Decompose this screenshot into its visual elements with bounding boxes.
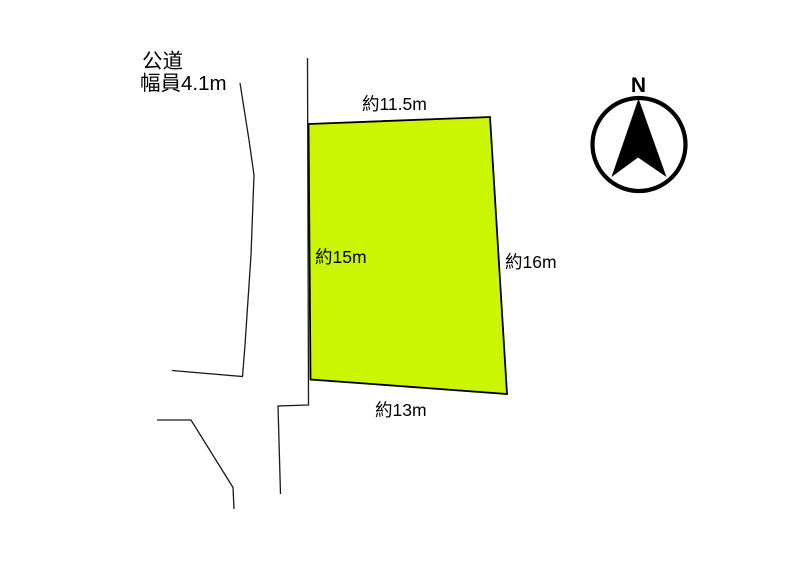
- side-road-boundary-line: [157, 420, 234, 509]
- road-type-label: 公道: [142, 50, 183, 73]
- site-plan-diagram: 公道 幅員4.1m 約11.5m 約15m 約16m 約13m N: [0, 0, 800, 566]
- compass: N: [593, 74, 686, 191]
- dimension-bottom-label: 約13m: [375, 400, 427, 420]
- north-label: N: [631, 74, 646, 97]
- site-plan-canvas: 公道 幅員4.1m 約11.5m 約15m 約16m 約13m N: [0, 0, 800, 566]
- road-left-boundary-line: [172, 83, 254, 377]
- road-right-boundary-line: [278, 58, 309, 494]
- road-width-label: 幅員4.1m: [140, 72, 227, 95]
- dimension-top-label: 約11.5m: [362, 94, 427, 114]
- north-arrow-icon: [612, 99, 667, 178]
- dimension-left-label: 約15m: [315, 247, 367, 267]
- dimension-right-label: 約16m: [505, 252, 557, 272]
